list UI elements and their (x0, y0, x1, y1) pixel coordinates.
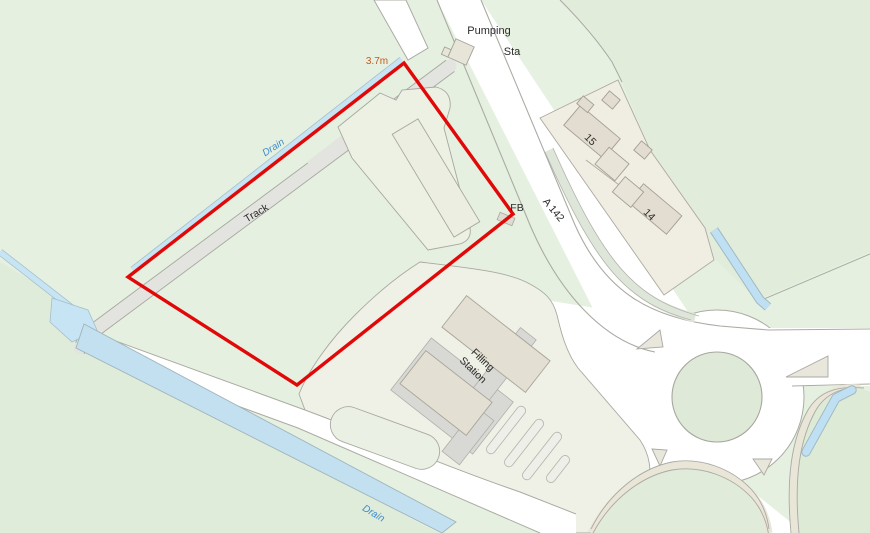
label-footbridge: FB (510, 202, 523, 214)
map-canvas: Pumping Sta 3.7m Drain Track FB A 142 15… (0, 0, 870, 533)
roundabout-island (672, 352, 762, 442)
label-pumping: Pumping (467, 25, 510, 37)
label-pumping-sta: Sta (504, 46, 521, 58)
label-spot-height: 3.7m (366, 56, 388, 67)
